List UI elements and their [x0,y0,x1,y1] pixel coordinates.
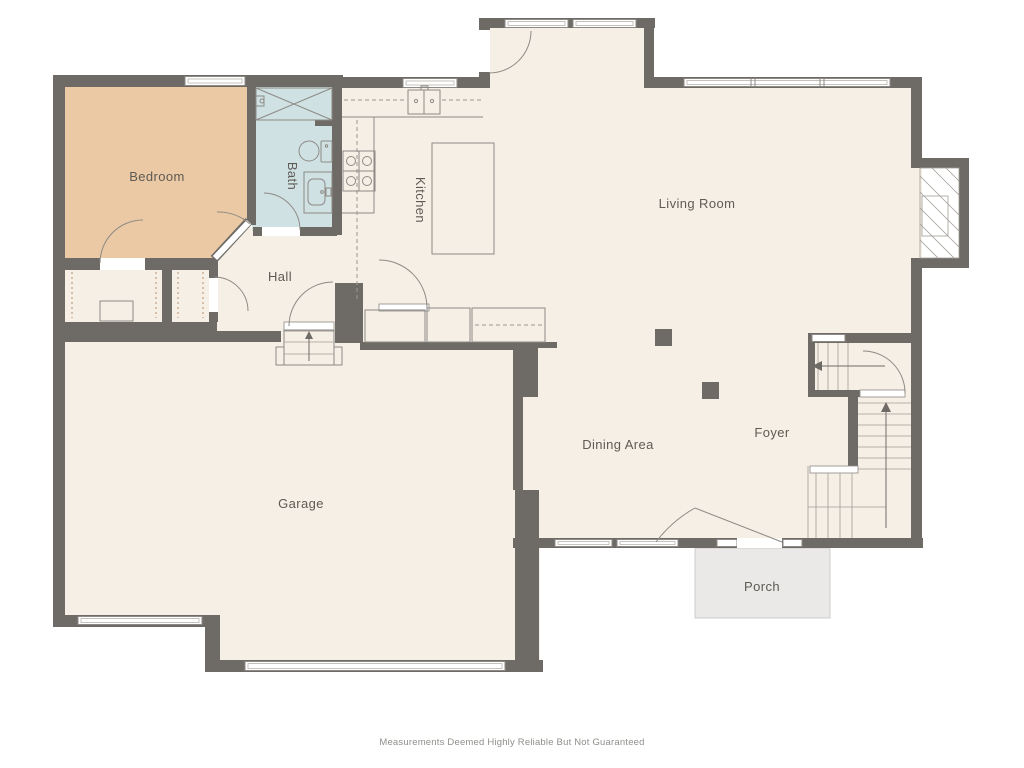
nook-door [479,30,490,72]
hall-label: Hall [268,269,292,284]
foyer-label: Foyer [754,425,790,440]
floor-plan-page: Bedroom Bath Kitchen Hall Living Room Di… [0,0,1024,768]
bath-label: Bath [285,162,300,190]
column [655,329,672,346]
porch-label: Porch [744,579,780,594]
column [702,382,719,399]
fireplace-icon [920,168,959,258]
bedroom-label: Bedroom [129,169,185,184]
stair-landing-window [812,335,845,342]
bedroom-closet-door [100,258,145,270]
kitchen-label: Kitchen [413,177,428,223]
kitchen-window [403,79,457,88]
stair-landing [810,466,858,473]
bath-floor [252,87,337,231]
bedroom-window [185,77,245,86]
basement-door [860,390,905,397]
living-room-window [684,79,890,87]
living-room-label: Living Room [659,196,736,211]
nook-floor [483,22,651,86]
garage-label: Garage [278,496,324,511]
bath-door [262,227,300,236]
disclaimer-text: Measurements Deemed Highly Reliable But … [379,737,644,748]
dining-area-label: Dining Area [582,437,654,452]
hall-closet-door [209,278,218,312]
floor-plan-drawing: Bedroom Bath Kitchen Hall Living Room Di… [0,0,1024,768]
dining-windows [555,540,678,547]
